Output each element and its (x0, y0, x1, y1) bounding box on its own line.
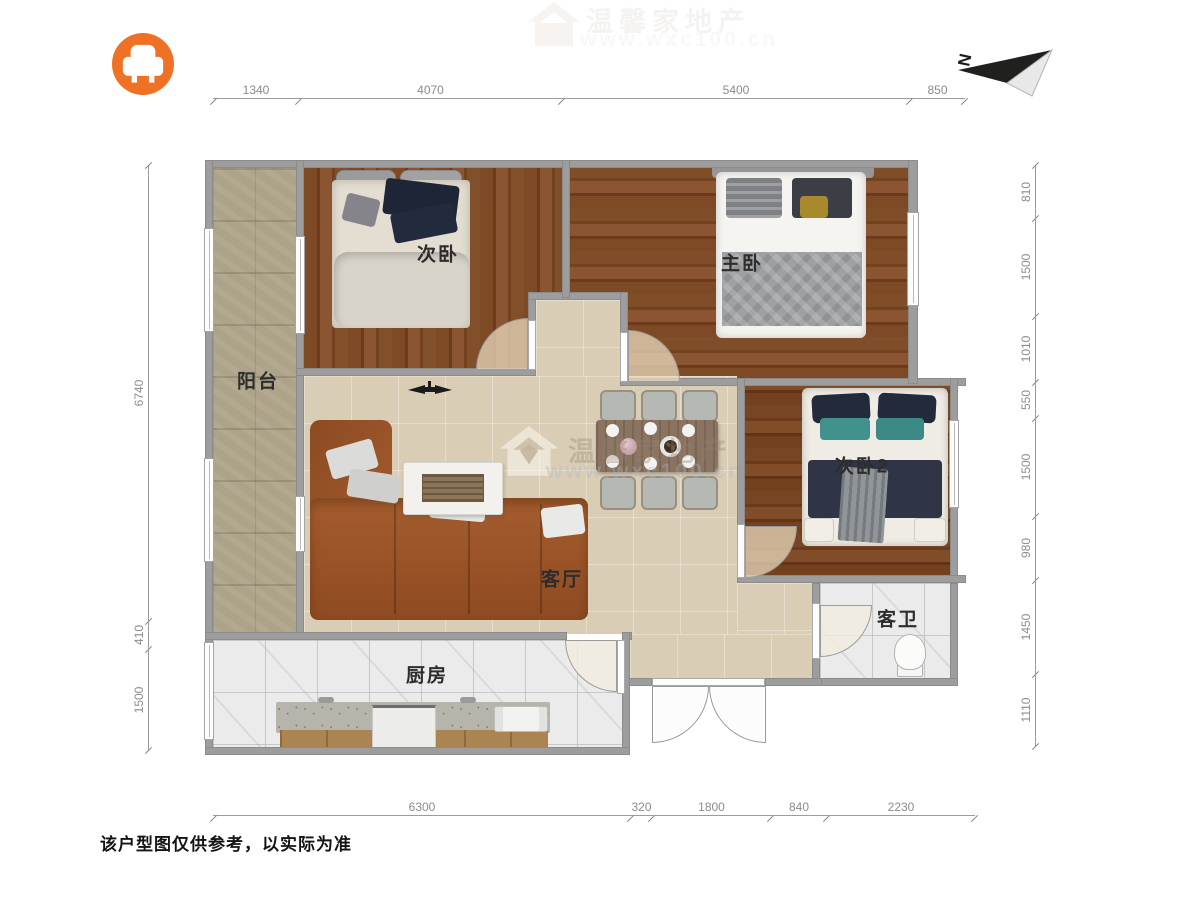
dim-value: 1450 (1020, 614, 1032, 641)
dim-value: 1500 (1020, 254, 1032, 281)
wall-master-left (562, 160, 570, 298)
dimension-bottom: 6300 320 1800 840 2230 (213, 801, 975, 816)
kitchen-sink (494, 706, 548, 732)
wall-kitchen-top (205, 632, 567, 640)
kitchen-island-white (372, 705, 436, 748)
dim-value: 810 (1020, 181, 1032, 201)
bed2-footboard-right (914, 518, 946, 542)
room-label-master: 主卧 (721, 249, 763, 276)
room-label-bedroom2: 次卧2 (835, 452, 890, 479)
dining-chair-top-1 (600, 390, 636, 422)
dim-value: 1800 (652, 801, 771, 813)
dim-value: 4070 (299, 84, 562, 96)
wall-kitchen-bottom (205, 747, 630, 755)
dim-value: 1110 (1020, 698, 1032, 723)
dim-value: 410 (133, 625, 145, 645)
house-icon (528, 2, 580, 48)
dimension-left: 6740 410 1500 (134, 165, 148, 750)
kitchen-faucet-1 (318, 697, 334, 703)
dim-value: 840 (771, 801, 827, 813)
room-label-balcony: 阳台 (237, 367, 279, 394)
wall-balcony-right (296, 160, 304, 640)
bedroom1-door-leaf (528, 320, 536, 370)
living-window-balcony (295, 496, 305, 552)
balcony-window-left-bottom (204, 458, 214, 562)
wall-bath-right (950, 583, 958, 684)
room-label-bathroom: 客卫 (877, 605, 919, 632)
dim-value: 6300 (213, 801, 631, 813)
dim-value: 6740 (133, 380, 145, 407)
bedroom2-window (949, 420, 959, 508)
dim-value: 1010 (1020, 336, 1032, 363)
dim-value: 980 (1020, 538, 1032, 558)
dimension-right: 810 1500 1010 550 1500 980 1450 1110 (1021, 165, 1035, 746)
kitchen-window (204, 642, 214, 740)
entry-floor (630, 634, 820, 680)
room-label-bedroom1: 次卧 (417, 240, 459, 267)
wall-bedroom2-left (737, 378, 745, 526)
balcony-window-left-top (204, 228, 214, 332)
wall-bath-bottom (812, 678, 958, 686)
floorplan-canvas: N 温馨家地产 www.wxc100.cn (0, 0, 1200, 900)
dining-chair-top-2 (641, 390, 677, 422)
disclaimer-text: 该户型图仅供参考，以实际为准 (100, 830, 352, 855)
master-pillow-left (726, 178, 782, 218)
bed2-pillow-teal-left (820, 418, 870, 440)
toilet-bowl (894, 634, 926, 670)
sofa-cushion-white-2 (540, 504, 585, 539)
master-door-leaf (620, 332, 628, 382)
balcony-floor (213, 168, 296, 632)
wall-bath-left-stub-bottom (812, 657, 820, 680)
wall-entry-right (765, 678, 822, 686)
entry-door-swing-left (652, 686, 709, 743)
north-label: N (954, 52, 975, 68)
dining-chair-top-3 (682, 390, 718, 422)
dim-value: 1500 (1020, 454, 1032, 481)
entry-door-swing-right (709, 686, 766, 743)
bedroom2-door-leaf (737, 524, 745, 578)
sofa-seam-1 (394, 504, 396, 614)
wall-nook-top (528, 292, 628, 300)
bed2-footboard-left (804, 518, 834, 542)
dim-value: 5400 (562, 84, 910, 96)
dim-value: 1500 (133, 686, 145, 713)
kitchen-door-leaf (617, 640, 625, 694)
ceiling-fan-icon (408, 380, 452, 400)
kitchen-faucet-2 (460, 697, 476, 703)
dimension-top: 1340 4070 5400 850 (213, 84, 965, 99)
wall-nook-right-stub (620, 292, 628, 334)
bed2-pillow-teal-right (876, 418, 924, 440)
master-window (907, 212, 919, 306)
north-arrow: N (950, 28, 1060, 113)
room-label-kitchen: 厨房 (406, 661, 448, 688)
dim-value: 850 (910, 84, 965, 96)
wall-bath-left-stub-top (812, 583, 820, 605)
room-label-living: 客厅 (541, 565, 583, 592)
wall-bedroom2-bottom (737, 575, 966, 583)
entry-threshold (652, 678, 765, 686)
dim-value: 2230 (827, 801, 975, 813)
armchair-icon (112, 33, 174, 95)
dim-value: 550 (1020, 390, 1032, 410)
hall-nook-floor (536, 300, 620, 378)
bathroom-door-leaf (812, 603, 820, 659)
dim-value: 320 (631, 801, 652, 813)
dim-value: 1340 (213, 84, 299, 96)
tv-screen (422, 474, 484, 502)
brand-logo (112, 33, 174, 95)
watermark-url: www.wxc100.cn (546, 460, 744, 484)
bedroom1-window (295, 236, 305, 334)
master-item-yellow (800, 196, 828, 218)
